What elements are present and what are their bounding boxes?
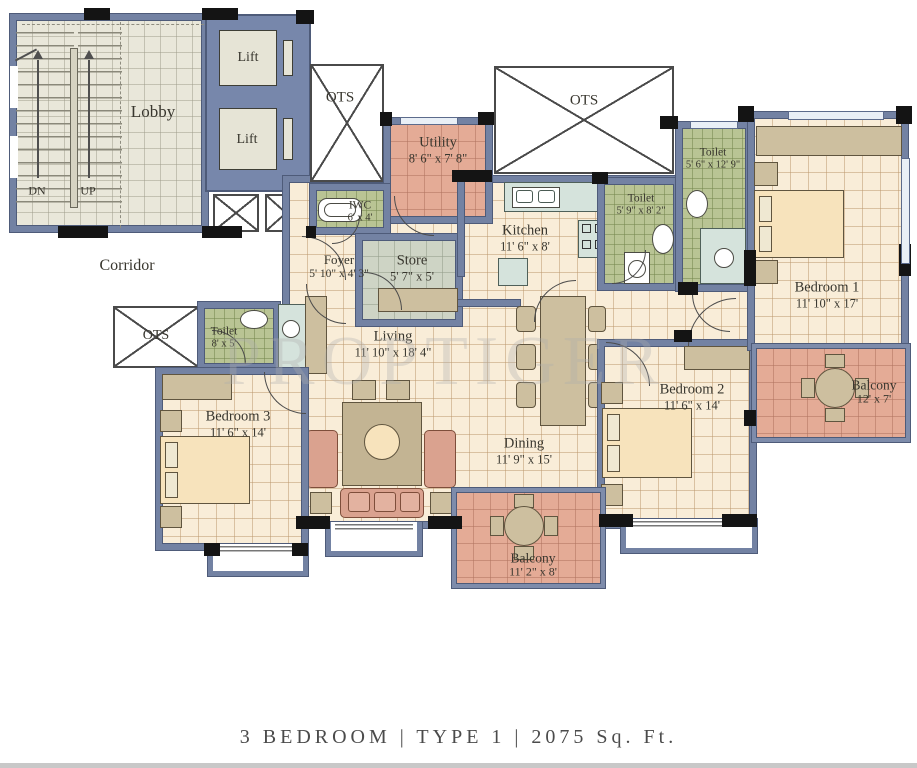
column bbox=[660, 116, 678, 129]
kitchen-wall bbox=[458, 300, 520, 306]
armchair bbox=[424, 430, 456, 488]
stair-window bbox=[10, 66, 18, 108]
sink-bowl bbox=[516, 190, 533, 203]
stair-window bbox=[10, 136, 18, 178]
column bbox=[204, 543, 220, 556]
label-kitchen: Kitchen 11' 6" x 8' bbox=[500, 223, 550, 254]
hob-burner bbox=[582, 224, 591, 233]
column bbox=[202, 226, 242, 238]
wardrobe bbox=[756, 126, 902, 156]
stairs-up-label: UP bbox=[80, 184, 95, 199]
plan-caption: 3 BEDROOM | TYPE 1 | 2075 Sq. Ft. bbox=[0, 726, 917, 749]
label-bedroom3: Bedroom 3 11' 6" x 14' bbox=[206, 409, 271, 440]
pillow bbox=[607, 414, 620, 441]
column bbox=[296, 10, 314, 24]
bottom-bar bbox=[0, 763, 917, 768]
column bbox=[58, 226, 108, 238]
column bbox=[592, 172, 608, 184]
label-balcony-right: Balcony 12' x 7' bbox=[852, 377, 897, 406]
window bbox=[788, 111, 884, 120]
balcony-table bbox=[504, 506, 544, 546]
column bbox=[428, 516, 462, 529]
side-table bbox=[310, 492, 332, 514]
label-dining: Dining 11' 9" x 15' bbox=[496, 436, 552, 467]
stairs-dn-label: DN bbox=[28, 184, 45, 199]
balcony-chair bbox=[490, 516, 504, 536]
bay-window-living bbox=[326, 522, 422, 556]
lift-label: Lift bbox=[237, 132, 258, 148]
column bbox=[202, 8, 238, 20]
pillow bbox=[165, 442, 178, 468]
sofa-cushion bbox=[348, 492, 370, 512]
armchair bbox=[306, 430, 338, 488]
column bbox=[452, 170, 492, 182]
pillow bbox=[607, 445, 620, 472]
ots-label: OTS bbox=[143, 328, 169, 344]
sofa-cushion bbox=[374, 492, 396, 512]
window bbox=[400, 117, 458, 125]
lobby-dashed-divider bbox=[120, 22, 121, 228]
label-iwc: IWC 6' x 4' bbox=[348, 199, 373, 224]
pillow bbox=[165, 472, 178, 498]
label-bedroom1: Bedroom 1 11' 10" x 17' bbox=[795, 280, 860, 311]
stair-divider bbox=[70, 48, 78, 208]
sink-bowl bbox=[538, 190, 555, 203]
label-bedroom2: Bedroom 2 11' 6" x 14' bbox=[660, 382, 725, 413]
ots-top-center bbox=[494, 66, 674, 174]
nightstand bbox=[160, 506, 182, 528]
lift-door-top bbox=[283, 40, 293, 76]
balcony-table bbox=[815, 368, 855, 408]
nightstand bbox=[160, 410, 182, 432]
hob-burner bbox=[582, 240, 591, 249]
label-toilet-mid: Toilet 5' 9" x 8' 2" bbox=[616, 192, 665, 217]
stair-flight-left bbox=[16, 32, 74, 204]
lobby-label: Lobby bbox=[131, 102, 175, 122]
window bbox=[901, 158, 910, 264]
wardrobe bbox=[684, 346, 750, 370]
label-toilet-top: Toilet 5' 6" x 12' 9" bbox=[686, 146, 740, 171]
lift-label: Lift bbox=[238, 50, 259, 66]
column bbox=[296, 516, 330, 529]
kitchen-wall bbox=[458, 176, 464, 276]
side-table bbox=[430, 492, 452, 514]
column bbox=[674, 330, 692, 342]
stairs-down-arrow bbox=[37, 60, 39, 178]
lift-door-bottom bbox=[283, 118, 293, 160]
stairs-up-arrow bbox=[88, 60, 90, 178]
label-store: Store 5' 7" x 5' bbox=[390, 253, 434, 284]
label-foyer: Foyer 5' 10" x 4' 3" bbox=[309, 253, 369, 281]
washbasin-icon bbox=[714, 248, 734, 268]
proptiger-watermark: PROPTIGER bbox=[222, 322, 666, 402]
balcony-chair bbox=[825, 408, 845, 422]
label-balcony-bottom: Balcony 11' 2" x 8' bbox=[509, 550, 557, 579]
ots-label: OTS bbox=[570, 93, 598, 110]
sofa-cushion bbox=[400, 492, 420, 512]
column bbox=[738, 106, 754, 122]
wc-icon bbox=[652, 224, 674, 254]
floor-plan: Lobby Lift Lift DN UP Corridor OTS OTS O… bbox=[0, 0, 917, 768]
label-utility: Utility 8' 6" x 7' 8" bbox=[409, 135, 467, 166]
stairs-up-arrowhead bbox=[84, 50, 94, 59]
window-glazing bbox=[217, 546, 299, 554]
column bbox=[678, 282, 698, 295]
balcony-chair bbox=[544, 516, 558, 536]
column bbox=[599, 514, 633, 527]
kitchen-cabinet bbox=[498, 258, 528, 286]
window bbox=[690, 121, 738, 129]
balcony-chair bbox=[825, 354, 845, 368]
ots-label: OTS bbox=[326, 90, 354, 107]
corridor-label: Corridor bbox=[99, 257, 154, 275]
balcony-chair bbox=[801, 378, 815, 398]
pillow bbox=[759, 226, 772, 252]
column bbox=[380, 112, 392, 126]
column bbox=[896, 106, 912, 124]
column bbox=[306, 226, 316, 238]
column bbox=[744, 410, 756, 426]
column bbox=[722, 514, 757, 527]
column bbox=[744, 250, 756, 286]
nightstand bbox=[754, 260, 778, 284]
wc-icon bbox=[686, 190, 708, 218]
coffee-table-top bbox=[364, 424, 400, 460]
window-glazing bbox=[335, 524, 413, 532]
column bbox=[84, 8, 110, 20]
pillow bbox=[759, 196, 772, 222]
column bbox=[478, 112, 494, 125]
lobby-dashed-top bbox=[22, 24, 204, 25]
ots-top-left bbox=[310, 64, 384, 182]
nightstand bbox=[754, 162, 778, 186]
column bbox=[292, 543, 308, 556]
